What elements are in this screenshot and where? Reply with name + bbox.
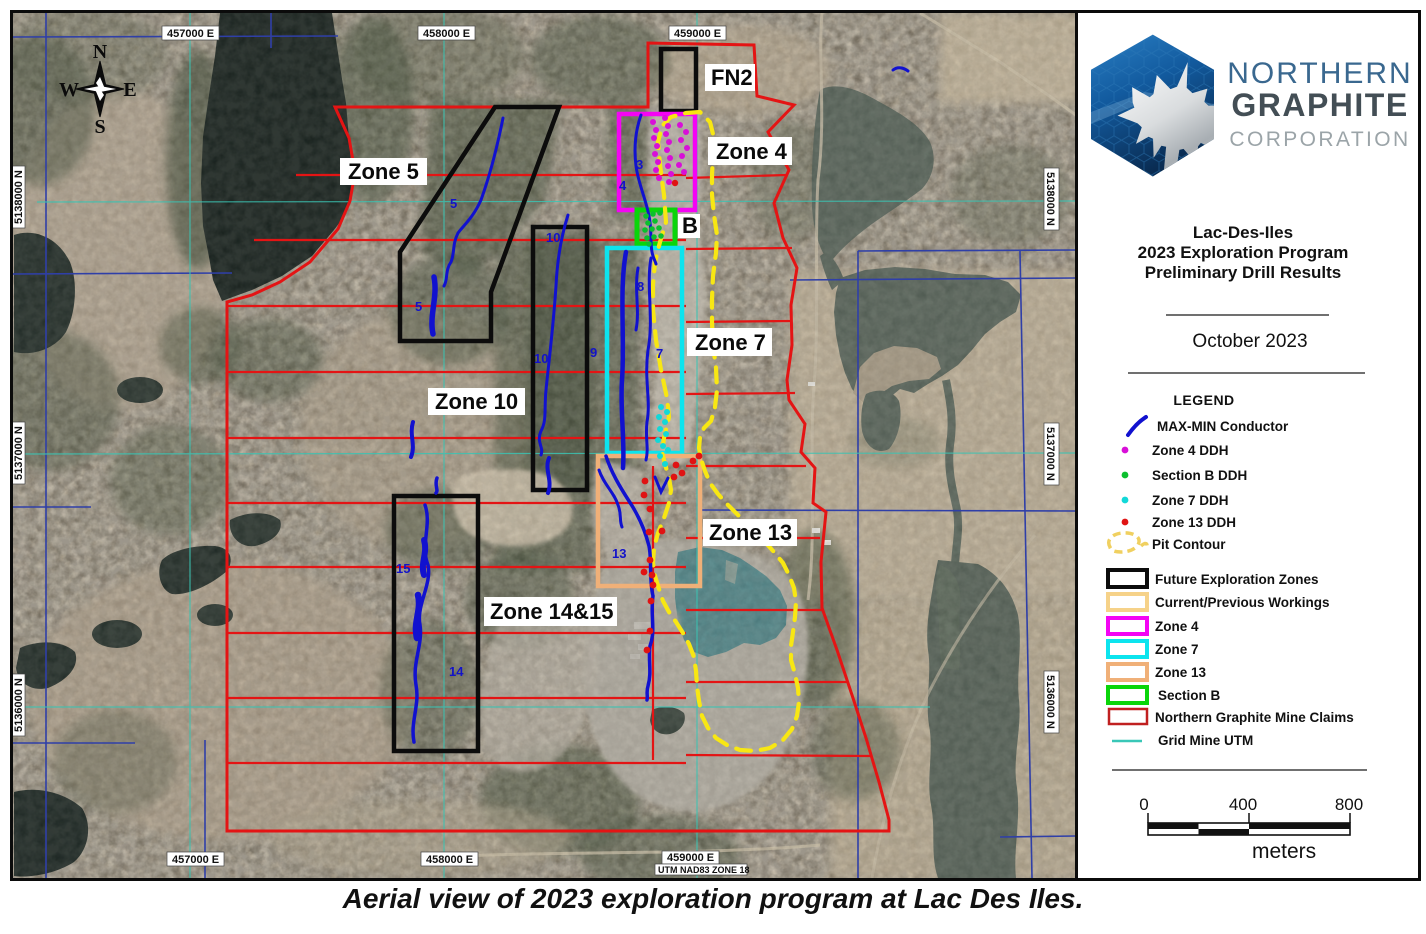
svg-text:October 2023: October 2023 [1192, 331, 1307, 352]
svg-text:S: S [94, 116, 105, 138]
svg-text:5: 5 [415, 299, 422, 314]
svg-text:Zone 13: Zone 13 [1155, 665, 1207, 680]
svg-text:LEGEND: LEGEND [1173, 392, 1234, 408]
svg-text:UTM NAD83 ZONE 18: UTM NAD83 ZONE 18 [658, 865, 750, 875]
svg-text:10: 10 [534, 351, 548, 366]
svg-text:E: E [123, 79, 136, 101]
svg-text:FN2: FN2 [711, 65, 753, 90]
svg-text:13: 13 [612, 546, 626, 561]
svg-text:9: 9 [590, 345, 597, 360]
svg-text:Zone 7 DDH: Zone 7 DDH [1152, 493, 1229, 508]
svg-text:2023 Exploration Program: 2023 Exploration Program [1138, 243, 1349, 262]
svg-text:Future Exploration Zones: Future Exploration Zones [1155, 572, 1319, 587]
svg-text:B: B [682, 213, 698, 238]
svg-text:Zone 14&15: Zone 14&15 [490, 599, 614, 624]
svg-text:Lac-Des-Iles: Lac-Des-Iles [1193, 223, 1293, 242]
svg-text:Zone 7: Zone 7 [695, 330, 766, 355]
svg-text:3: 3 [636, 157, 643, 172]
svg-text:Section B: Section B [1158, 688, 1221, 703]
svg-text:Zone 7: Zone 7 [1155, 642, 1199, 657]
svg-text:Zone 10: Zone 10 [435, 389, 518, 414]
svg-text:MAX-MIN Conductor: MAX-MIN Conductor [1157, 419, 1289, 434]
svg-text:400: 400 [1229, 795, 1257, 814]
svg-text:Zone 13: Zone 13 [709, 520, 792, 545]
svg-text:W: W [59, 79, 79, 101]
svg-text:5138000 N: 5138000 N [1044, 172, 1056, 226]
svg-text:Northern Graphite Mine Claims: Northern Graphite Mine Claims [1155, 710, 1354, 725]
svg-text:meters: meters [1252, 840, 1316, 863]
svg-text:14: 14 [449, 664, 464, 679]
svg-text:5136000 N: 5136000 N [13, 678, 25, 732]
svg-text:5138000 N: 5138000 N [13, 170, 25, 224]
svg-text:459000 E: 459000 E [667, 852, 714, 864]
svg-text:800: 800 [1335, 795, 1363, 814]
svg-text:0: 0 [1139, 795, 1148, 814]
svg-text:Zone 5: Zone 5 [348, 159, 419, 184]
svg-text:458000 E: 458000 E [426, 854, 473, 866]
svg-text:Zone 4: Zone 4 [716, 139, 788, 164]
svg-text:8: 8 [637, 279, 644, 294]
svg-text:CORPORATION: CORPORATION [1229, 128, 1410, 151]
svg-text:5136000 N: 5136000 N [1044, 675, 1056, 729]
svg-text:457000 E: 457000 E [167, 28, 214, 40]
svg-text:Zone 13 DDH: Zone 13 DDH [1152, 515, 1236, 530]
svg-text:5137000 N: 5137000 N [13, 426, 25, 480]
svg-text:458000 E: 458000 E [423, 28, 470, 40]
svg-text:NORTHERN: NORTHERN [1227, 57, 1412, 90]
svg-text:5: 5 [450, 196, 457, 211]
svg-text:Grid Mine UTM: Grid Mine UTM [1158, 733, 1253, 748]
svg-text:10: 10 [546, 230, 560, 245]
svg-text:N: N [93, 41, 108, 63]
svg-text:5137000 N: 5137000 N [1044, 427, 1056, 481]
svg-text:GRAPHITE: GRAPHITE [1231, 87, 1408, 123]
svg-text:Preliminary Drill Results: Preliminary Drill Results [1145, 263, 1342, 282]
svg-text:15: 15 [396, 561, 410, 576]
svg-text:Pit Contour: Pit Contour [1152, 537, 1226, 552]
svg-text:Zone 4: Zone 4 [1155, 619, 1199, 634]
svg-text:Section B DDH: Section B DDH [1152, 468, 1247, 483]
svg-text:7: 7 [656, 346, 663, 361]
svg-text:Current/Previous Workings: Current/Previous Workings [1155, 595, 1330, 610]
svg-text:459000 E: 459000 E [674, 28, 721, 40]
svg-text:4: 4 [619, 178, 627, 193]
svg-text:457000 E: 457000 E [172, 854, 219, 866]
svg-text:Zone 4 DDH: Zone 4 DDH [1152, 443, 1229, 458]
